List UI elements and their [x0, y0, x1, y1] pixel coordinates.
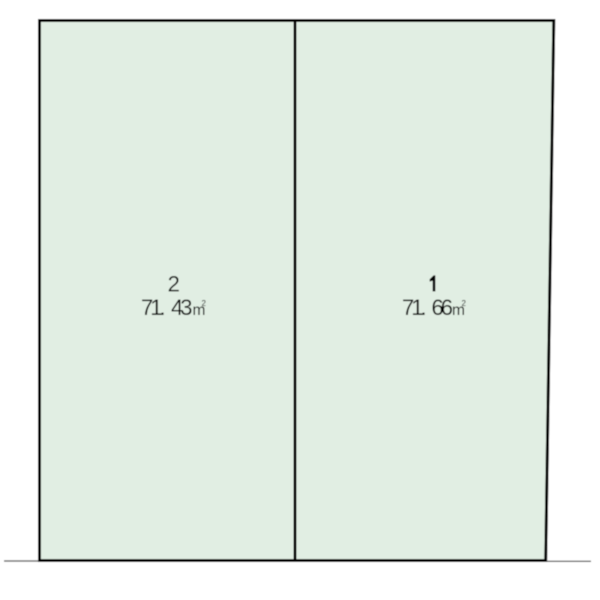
svg-text:71.: 71.: [402, 295, 425, 320]
svg-text:43: 43: [171, 295, 192, 320]
svg-text:2: 2: [202, 299, 207, 308]
svg-text:2: 2: [168, 272, 180, 297]
svg-text:2: 2: [462, 299, 467, 308]
svg-text:66: 66: [432, 295, 453, 320]
svg-text:71.: 71.: [141, 295, 164, 320]
